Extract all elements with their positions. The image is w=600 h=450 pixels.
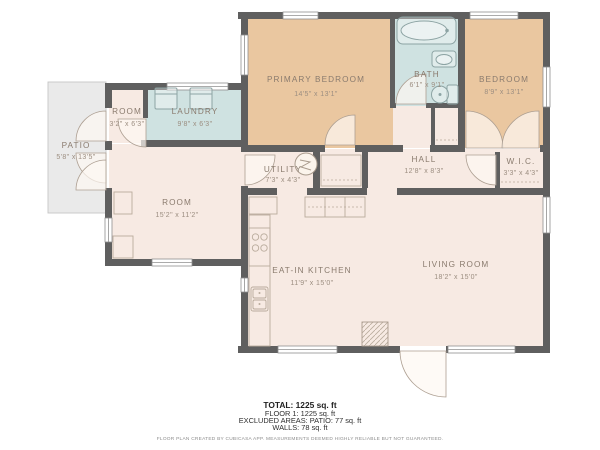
patio-label: PATIO	[62, 141, 91, 150]
dryer-icon	[190, 88, 212, 109]
washer-icon	[155, 88, 177, 109]
floor-plan-page: PRIMARY BEDROOM 14'5" x 13'1" BATH 6'1" …	[0, 0, 600, 450]
window-icon	[283, 12, 318, 19]
window-icon	[278, 346, 337, 353]
floor-plan-drawing: PRIMARY BEDROOM 14'5" x 13'1" BATH 6'1" …	[0, 0, 600, 450]
hall-label: HALL	[412, 155, 437, 164]
laundry-label: LAUNDRY	[172, 107, 219, 116]
walls-area-text: WALLS: 78 sq. ft	[272, 423, 327, 432]
window-icon	[543, 67, 550, 107]
small-room-label: ROOM	[112, 107, 142, 116]
summary-footer: TOTAL: 1225 sq. ft FLOOR 1: 1225 sq. ft …	[157, 400, 444, 442]
window-icon	[470, 12, 518, 19]
window-icon	[152, 259, 192, 266]
vestibule-floor	[393, 106, 461, 148]
laundry-dims: 9'8" x 6'3"	[177, 121, 212, 128]
wic-label: W.I.C.	[507, 157, 536, 166]
sink-icon	[432, 51, 456, 67]
door-swing-entry	[400, 351, 446, 397]
floor-vent-icon	[362, 322, 388, 346]
kitchen-label: EAT-IN KITCHEN	[272, 266, 351, 275]
patio-dims: 5'8" x 13'5"	[56, 154, 95, 161]
large-room-label: ROOM	[162, 198, 192, 207]
large-room-dims: 15'2" x 11'2"	[155, 212, 198, 219]
window-icon	[241, 278, 248, 292]
window-icon	[241, 35, 248, 75]
bedroom-label: BEDROOM	[479, 75, 529, 84]
disclaimer-text: FLOOR PLAN CREATED BY CUBICASA APP. MEAS…	[157, 436, 444, 442]
small-room-dims: 3'2" x 6'3"	[109, 121, 144, 128]
utility-dims: 7'3" x 4'3"	[265, 177, 300, 184]
living-room-dims: 18'2" x 15'0"	[434, 274, 478, 281]
bedroom-dims: 8'9" x 13'1"	[484, 89, 523, 96]
window-icon	[105, 218, 112, 242]
window-icon	[543, 197, 550, 233]
utility-label: UTILITY	[264, 165, 302, 174]
wic-dims: 3'3" x 4'3"	[503, 170, 538, 177]
primary-bedroom-label: PRIMARY BEDROOM	[267, 75, 365, 84]
kitchen-dims: 11'9" x 15'0"	[290, 280, 333, 287]
living-room-label: LIVING ROOM	[423, 260, 490, 269]
room-fills	[109, 15, 546, 349]
window-icon	[448, 346, 515, 353]
bathtub-icon	[397, 17, 456, 44]
primary-bedroom-dims: 14'5" x 13'1"	[294, 91, 338, 98]
bath-label: BATH	[414, 70, 440, 79]
bath-dims: 6'1" x 9'1"	[409, 82, 444, 89]
hall-dims: 12'8" x 8'3"	[404, 168, 443, 175]
